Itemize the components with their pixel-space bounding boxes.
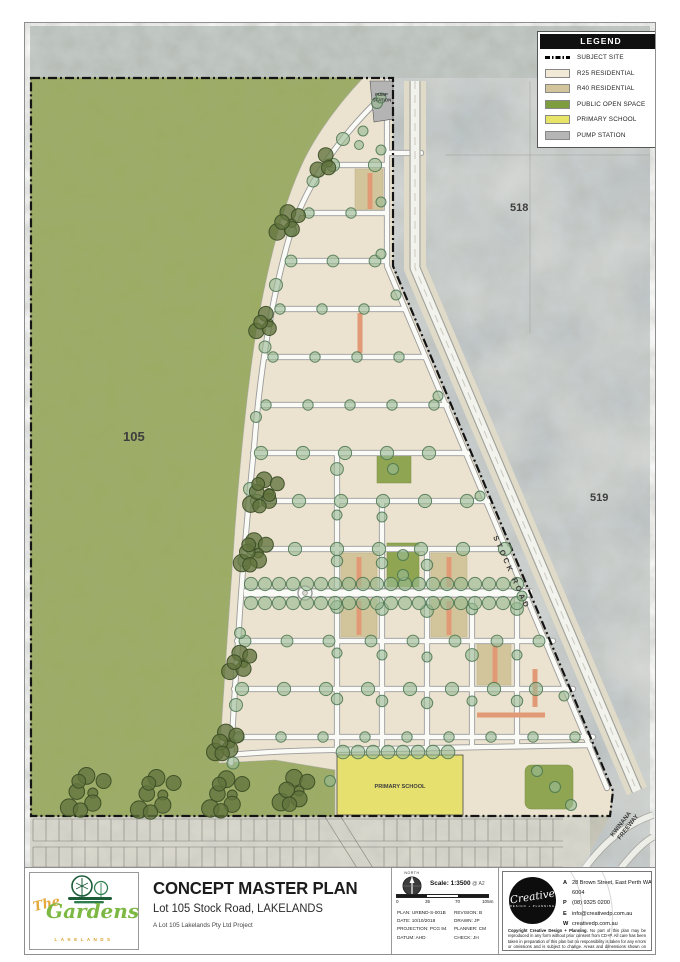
tree: [380, 446, 393, 459]
tree: [570, 732, 580, 742]
tree: [533, 635, 545, 647]
tree: [398, 596, 411, 609]
meta-check: CHECK: JH: [454, 934, 494, 942]
r40-swatch: [545, 84, 570, 93]
tree: [414, 542, 427, 555]
tree: [252, 478, 265, 491]
tree: [368, 158, 381, 171]
meta-plan: PLAN: URBND-S-001B: [397, 909, 454, 917]
tree: [360, 732, 370, 742]
tree: [282, 797, 296, 811]
tree: [142, 776, 156, 790]
tree: [319, 682, 332, 695]
tree: [303, 400, 313, 410]
tree: [244, 577, 257, 590]
tree: [259, 341, 271, 353]
master-plan-map: 105 518 519 STOCK ROAD KWINANA FREEWAY P…: [25, 23, 655, 868]
tree: [272, 577, 285, 590]
tree: [475, 491, 485, 501]
contact-address: A28 Brown Street, East Perth WA 6004: [563, 878, 652, 898]
tree: [394, 352, 404, 362]
tree: [361, 682, 374, 695]
tree: [300, 774, 315, 789]
tree: [384, 577, 397, 590]
tree: [331, 555, 342, 566]
tree: [331, 463, 344, 476]
tree: [388, 464, 399, 475]
tree: [235, 682, 248, 695]
tree: [460, 494, 473, 507]
tree: [487, 682, 500, 695]
tree: [342, 577, 355, 590]
tree: [212, 777, 226, 791]
tree: [288, 542, 301, 555]
tree: [391, 290, 401, 300]
sheet-frame: 105 518 519 STOCK ROAD KWINANA FREEWAY P…: [24, 22, 656, 955]
meta-date: DATE: 10/10/2018: [397, 917, 454, 925]
legend-item-pump: PUMP STATION: [538, 128, 655, 144]
tree: [277, 682, 290, 695]
tree: [377, 650, 387, 660]
tree: [402, 732, 412, 742]
tree: [482, 596, 495, 609]
tree: [258, 537, 273, 552]
tree: [376, 494, 389, 507]
tree: [355, 141, 364, 150]
tree: [433, 391, 443, 401]
tree: [318, 148, 333, 163]
tree: [403, 682, 416, 695]
tree: [229, 728, 244, 743]
tree: [356, 596, 369, 609]
tree: [421, 559, 432, 570]
tree: [310, 352, 320, 362]
tree: [426, 596, 439, 609]
tree: [328, 596, 341, 609]
tree: [454, 596, 467, 609]
tree: [421, 697, 432, 708]
tree: [328, 577, 341, 590]
tree: [258, 577, 271, 590]
tree: [467, 696, 477, 706]
legend-item-pos: PUBLIC OPEN SPACE: [538, 97, 655, 113]
tree: [270, 279, 283, 292]
tree: [398, 570, 409, 581]
primary-school-label: PRIMARY SCHOOL: [375, 784, 427, 790]
tree: [268, 352, 278, 362]
tree: [292, 494, 305, 507]
tree: [359, 304, 369, 314]
scale-section: NORTH Scale: 1:3500 @ A2 0 35 70: [391, 868, 498, 954]
tree: [396, 745, 410, 759]
tree: [418, 494, 431, 507]
tree: [254, 315, 268, 329]
tree: [331, 693, 342, 704]
plan-subtitle: Lot 105 Stock Road, LAKELANDS: [153, 903, 384, 915]
tree: [468, 577, 481, 590]
meta-datum: DATUM: AHD: [397, 934, 454, 942]
tree: [496, 596, 509, 609]
tree: [251, 412, 262, 423]
pump-swatch: [545, 131, 570, 140]
tree: [258, 596, 271, 609]
tree: [426, 745, 440, 759]
legend: LEGEND SUBJECT SITE R25 RESIDENTIAL R40 …: [537, 31, 655, 148]
legend-item-school: PRIMARY SCHOOL: [538, 112, 655, 128]
tree: [270, 477, 284, 491]
tree: [456, 542, 469, 555]
tree: [275, 215, 290, 230]
tree: [244, 596, 257, 609]
tree: [227, 757, 239, 769]
tree: [444, 732, 454, 742]
tree: [511, 695, 522, 706]
tree: [411, 745, 425, 759]
tree: [449, 635, 461, 647]
tree: [422, 652, 432, 662]
tree: [376, 557, 387, 568]
tree: [412, 577, 425, 590]
tree: [318, 732, 328, 742]
pos-swatch: [545, 100, 570, 109]
tree: [253, 500, 266, 513]
tree: [166, 776, 181, 791]
tree: [314, 596, 327, 609]
tree: [491, 635, 503, 647]
pump-station-label: PUMP STATION: [373, 92, 392, 103]
legend-item-r25: R25 RESIDENTIAL: [538, 66, 655, 82]
firm-contacts: A28 Brown Street, East Perth WA 6004 P(0…: [563, 878, 652, 929]
tree: [243, 558, 257, 572]
tree: [235, 777, 250, 792]
tree: [566, 800, 577, 811]
firm-box: Creative DESIGN + PLANNING A28 Brown Str…: [502, 871, 652, 951]
tree: [338, 446, 351, 459]
title-section: CONCEPT MASTER PLAN Lot 105 Stock Road, …: [143, 868, 391, 954]
tree: [512, 650, 522, 660]
tree: [214, 804, 228, 818]
plan-metadata: PLAN: URBND-S-001B DATE: 10/10/2018 PROJ…: [397, 909, 494, 942]
tree: [235, 628, 246, 639]
title-block: The Gardens LAKELANDS CONCEPT MASTER PLA…: [25, 868, 655, 954]
tree: [272, 596, 285, 609]
tree: [242, 538, 256, 552]
gardens-logo-section: The Gardens LAKELANDS: [25, 868, 143, 954]
tree: [314, 577, 327, 590]
tree: [332, 510, 342, 520]
tree: [372, 542, 385, 555]
legend-item-r40: R40 RESIDENTIAL: [538, 81, 655, 97]
tree: [528, 732, 538, 742]
tree: [358, 126, 368, 136]
tree: [285, 255, 297, 267]
scale-bar: [396, 894, 489, 898]
tree: [296, 446, 309, 459]
meta-projection: PROJECTION: PCG 94: [397, 925, 454, 933]
tree: [377, 512, 387, 522]
gardens-logo-sub: LAKELANDS: [30, 937, 138, 942]
tree: [440, 596, 453, 609]
plan-title: CONCEPT MASTER PLAN: [153, 878, 381, 899]
tree: [486, 732, 496, 742]
tree: [334, 494, 347, 507]
gardens-logo: The Gardens LAKELANDS: [29, 872, 139, 950]
plan-project-line: A Lot 105 Lakelands Pty Ltd Project: [153, 922, 391, 929]
tree: [300, 596, 313, 609]
creative-logo: Creative DESIGN + PLANNING: [509, 877, 556, 924]
tree: [279, 782, 295, 798]
copyright-text: Copyright Creative Design + Planning. No…: [508, 928, 646, 951]
tree: [254, 446, 267, 459]
gardens-logo-name: Gardens: [46, 899, 139, 923]
firm-section: Creative DESIGN + PLANNING A28 Brown Str…: [498, 868, 655, 954]
tree: [440, 577, 453, 590]
tree: [323, 635, 335, 647]
tree: [281, 635, 293, 647]
tree: [468, 596, 481, 609]
tree: [346, 208, 356, 218]
tree: [454, 577, 467, 590]
tree: [227, 655, 242, 670]
tree: [387, 400, 397, 410]
tree: [376, 145, 386, 155]
tree: [243, 649, 257, 663]
scale-text: Scale: 1:3500 @ A2: [430, 880, 485, 887]
tree: [286, 596, 299, 609]
tree: [330, 542, 343, 555]
tree: [261, 400, 271, 410]
tree: [72, 774, 86, 788]
tree: [336, 745, 350, 759]
tree: [366, 745, 380, 759]
plan-sheet: 105 518 519 STOCK ROAD KWINANA FREEWAY P…: [0, 0, 680, 962]
tree: [332, 648, 342, 658]
map-area: 105 518 519 STOCK ROAD KWINANA FREEWAY P…: [25, 23, 655, 868]
lot-519-label: 519: [590, 492, 608, 504]
tree: [398, 550, 409, 561]
tree: [370, 577, 383, 590]
tree: [286, 577, 299, 590]
tree: [96, 774, 111, 789]
tree: [230, 699, 243, 712]
existing-subdivision-bg: [30, 817, 590, 868]
tree: [345, 400, 355, 410]
tree: [529, 682, 542, 695]
tree: [532, 766, 543, 777]
tree: [342, 596, 355, 609]
tree: [376, 249, 386, 259]
tree: [550, 782, 561, 793]
tree: [300, 577, 313, 590]
tree: [441, 745, 455, 759]
tree: [322, 161, 336, 175]
tree: [376, 695, 387, 706]
tree: [496, 577, 509, 590]
tree: [384, 596, 397, 609]
tree: [381, 745, 395, 759]
tree: [356, 577, 369, 590]
legend-item-subject-site: SUBJECT SITE: [538, 50, 655, 66]
subject-site-swatch: [545, 56, 570, 59]
legend-title: LEGEND: [540, 34, 656, 49]
lot-518-label: 518: [510, 202, 528, 214]
tree: [466, 649, 479, 662]
tree: [73, 803, 87, 817]
tree: [317, 304, 327, 314]
tree: [327, 255, 339, 267]
tree: [337, 133, 350, 146]
r25-swatch: [545, 69, 570, 78]
tree: [263, 489, 275, 501]
tree: [291, 209, 305, 223]
meta-planner: PLANNER: CM: [454, 925, 494, 933]
tree: [482, 577, 495, 590]
tree: [407, 635, 419, 647]
tree: [370, 596, 383, 609]
meta-drawn: DRAWN: JP: [454, 917, 494, 925]
contact-phone: P(08) 9325 0200: [563, 898, 652, 908]
contact-email: Einfo@creativedp.com.au: [563, 909, 652, 919]
school-swatch: [545, 115, 570, 124]
tree: [376, 197, 386, 207]
meta-revision: REVISION: B: [454, 909, 494, 917]
tree: [365, 635, 377, 647]
tree: [559, 691, 569, 701]
tree: [275, 304, 285, 314]
tree: [351, 745, 365, 759]
tree: [412, 596, 425, 609]
tree: [276, 732, 286, 742]
tree: [352, 352, 362, 362]
tree: [215, 746, 229, 760]
tree: [325, 776, 336, 787]
lot-105-label: 105: [123, 429, 145, 444]
tree: [422, 446, 435, 459]
tree: [445, 682, 458, 695]
tree: [426, 577, 439, 590]
tree: [143, 805, 157, 819]
